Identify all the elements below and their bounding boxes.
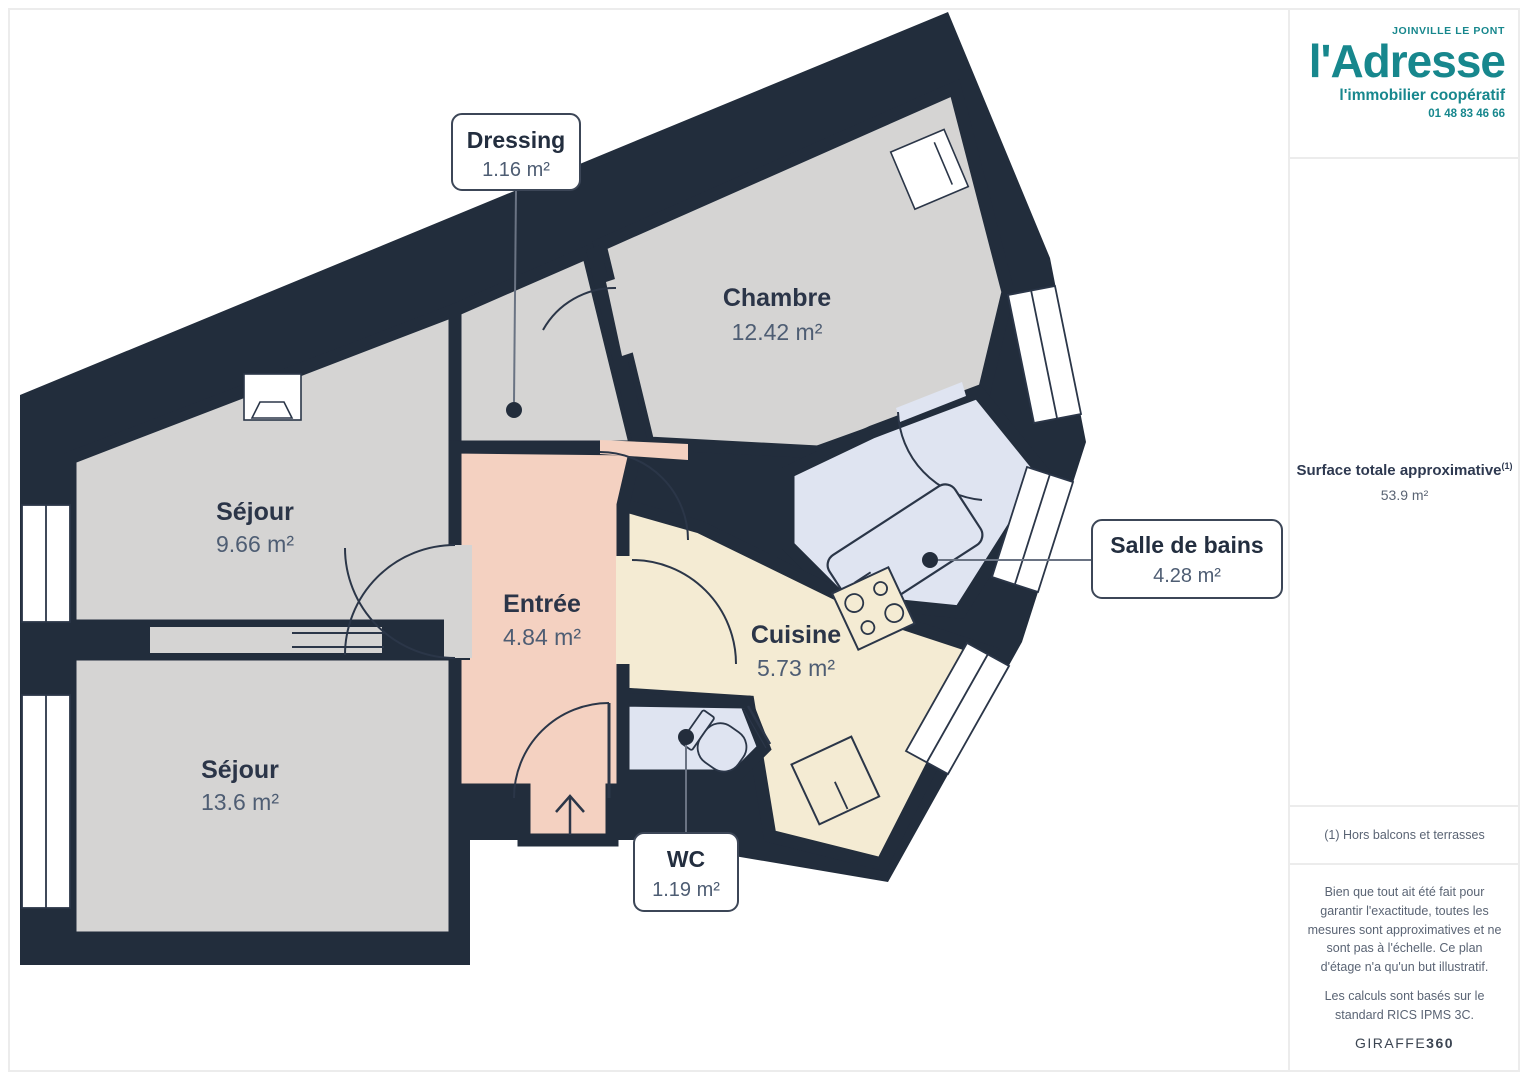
svg-text:1.16 m²: 1.16 m² xyxy=(482,159,550,181)
window-sejour-haut xyxy=(22,505,70,622)
surface-note-ref: (1) xyxy=(1502,461,1513,471)
leader-dot xyxy=(506,402,522,418)
svg-text:13.6 m²: 13.6 m² xyxy=(201,789,279,815)
doorway-sejour-entree xyxy=(444,545,472,658)
window-sejour-bas xyxy=(22,695,70,908)
svg-text:Chambre: Chambre xyxy=(723,284,831,312)
agency-name: l'Adresse xyxy=(1290,37,1505,85)
svg-text:Entrée: Entrée xyxy=(503,590,581,618)
giraffe360-watermark: GIRAFFE360 xyxy=(1355,1035,1454,1051)
agency-phone: 01 48 83 46 66 xyxy=(1290,108,1505,120)
sejour-divider-stub-left xyxy=(20,620,150,660)
agency-logo: JOINVILLE LE PONT l'Adresse l'immobilier… xyxy=(1290,9,1519,159)
svg-text:WC: WC xyxy=(667,846,705,872)
leader-dot xyxy=(678,729,694,745)
disclaimer-text-2: Les calculs sont basés sur le standard R… xyxy=(1306,987,1503,1025)
disclaimer-text-1: Bien que tout ait été fait pour garantir… xyxy=(1306,883,1503,977)
svg-text:4.28 m²: 4.28 m² xyxy=(1153,565,1221,587)
giraffe-brand: GIRAFFE xyxy=(1355,1035,1426,1051)
doorway-entree-cuisine xyxy=(616,556,632,664)
svg-text:5.73 m²: 5.73 m² xyxy=(757,655,835,681)
svg-text:Séjour: Séjour xyxy=(201,756,279,784)
sidebar: JOINVILLE LE PONT l'Adresse l'immobilier… xyxy=(1288,9,1519,1071)
svg-text:Séjour: Séjour xyxy=(216,498,294,526)
svg-text:1.19 m²: 1.19 m² xyxy=(652,879,720,901)
surface-title-text: Surface totale approximative xyxy=(1296,462,1501,479)
disclaimer-section: Bien que tout ait été fait pour garantir… xyxy=(1290,865,1519,1071)
surface-footnote: (1) Hors balcons et terrasses xyxy=(1290,807,1519,865)
svg-text:Dressing: Dressing xyxy=(467,127,565,153)
sejour-divider-opening xyxy=(140,627,390,653)
svg-text:4.84 m²: 4.84 m² xyxy=(503,624,581,650)
svg-text:Salle de bains: Salle de bains xyxy=(1110,532,1263,558)
surface-summary: Surface totale approximative(1) 53.9 m² xyxy=(1290,159,1519,807)
fireplace-niche xyxy=(244,374,301,420)
svg-text:12.42 m²: 12.42 m² xyxy=(732,319,823,345)
giraffe-suffix: 360 xyxy=(1426,1035,1454,1051)
agency-tagline: l'immobilier coopératif xyxy=(1290,87,1505,105)
surface-value: 53.9 m² xyxy=(1381,487,1428,503)
svg-text:Cuisine: Cuisine xyxy=(751,621,841,649)
leader-dot xyxy=(922,552,938,568)
surface-title: Surface totale approximative(1) xyxy=(1296,461,1512,479)
svg-text:9.66 m²: 9.66 m² xyxy=(216,531,294,557)
